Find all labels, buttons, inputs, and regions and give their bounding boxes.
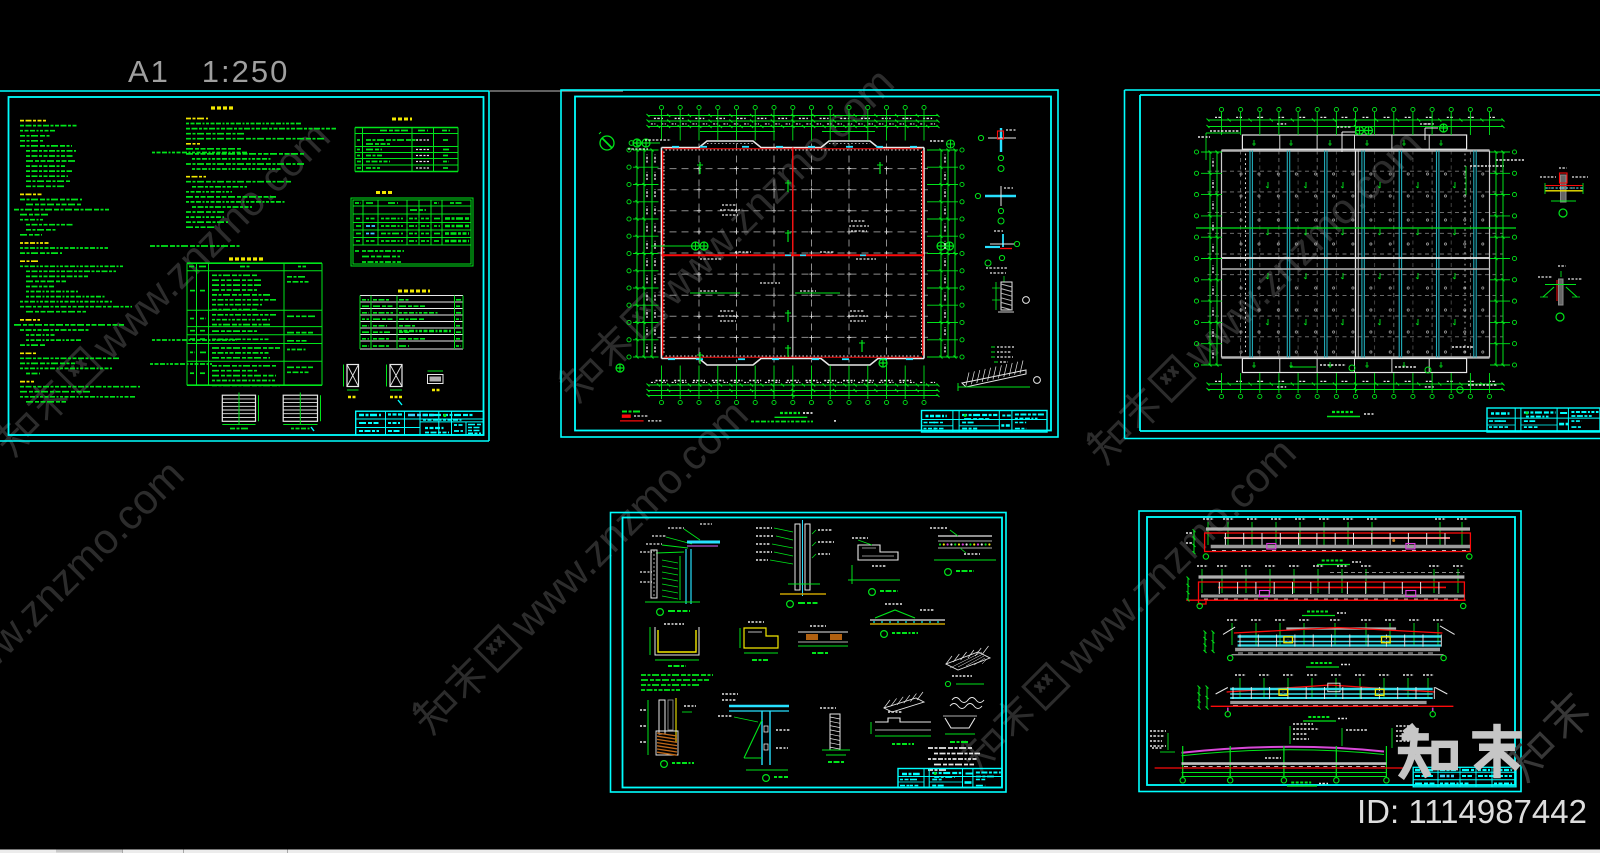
svg-text:A1 1:250: A1 1:250 (128, 54, 289, 89)
svg-text:ID: 1114987442: ID: 1114987442 (1357, 793, 1587, 830)
